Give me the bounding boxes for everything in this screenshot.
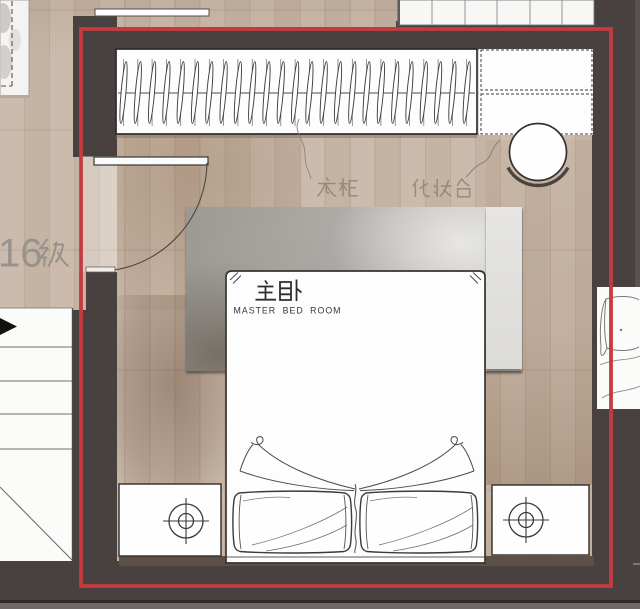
svg-text:16: 16: [0, 232, 43, 276]
svg-text:MASTER BED ROOM: MASTER BED ROOM: [234, 306, 342, 316]
